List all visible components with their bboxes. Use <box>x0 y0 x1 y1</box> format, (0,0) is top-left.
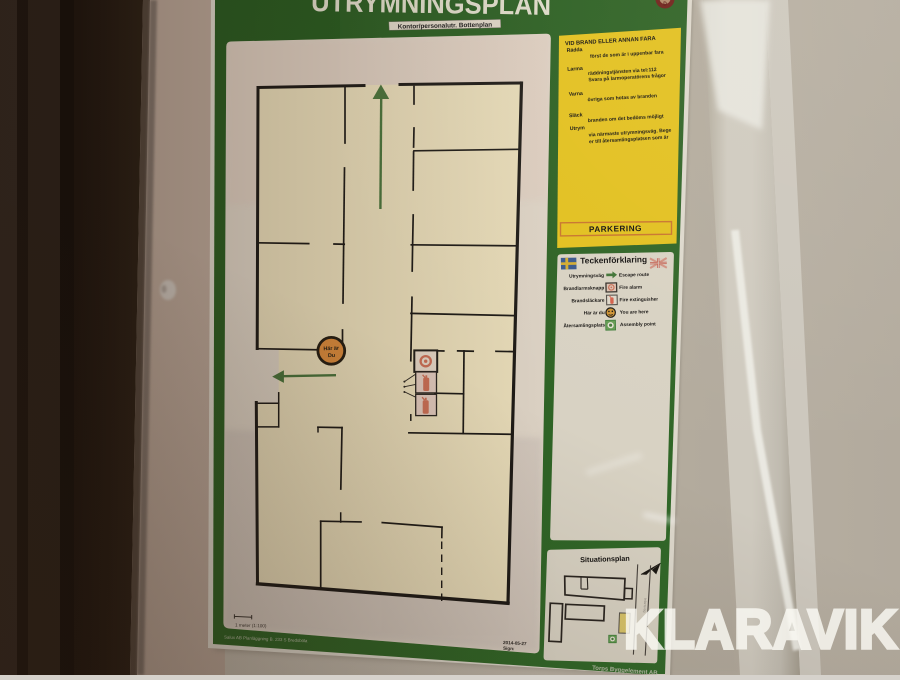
svg-text:KLARAVIK: KLARAVIK <box>624 598 898 660</box>
